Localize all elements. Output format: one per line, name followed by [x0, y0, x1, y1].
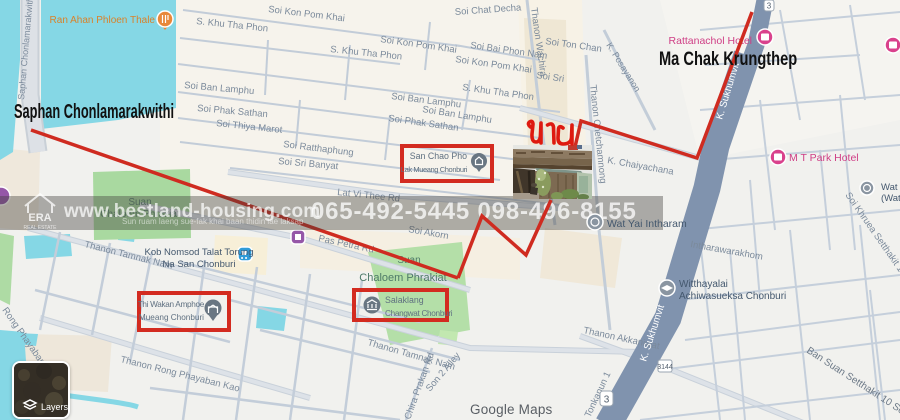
svg-text:Changwat Chonburi: Changwat Chonburi [385, 309, 453, 318]
svg-text:Layers: Layers [41, 402, 68, 412]
svg-text:Lak Mueang Chonburi: Lak Mueang Chonburi [401, 165, 468, 174]
svg-text:Mueang Chonburi: Mueang Chonburi [139, 313, 204, 322]
svg-text:Wat Yai Intharam: Wat Yai Intharam [607, 218, 687, 230]
svg-text:San Chao Pho: San Chao Pho [410, 151, 467, 161]
svg-text:Thi Wakan Amphoe: Thi Wakan Amphoe [138, 300, 205, 309]
svg-text:Salaklang: Salaklang [385, 295, 424, 305]
